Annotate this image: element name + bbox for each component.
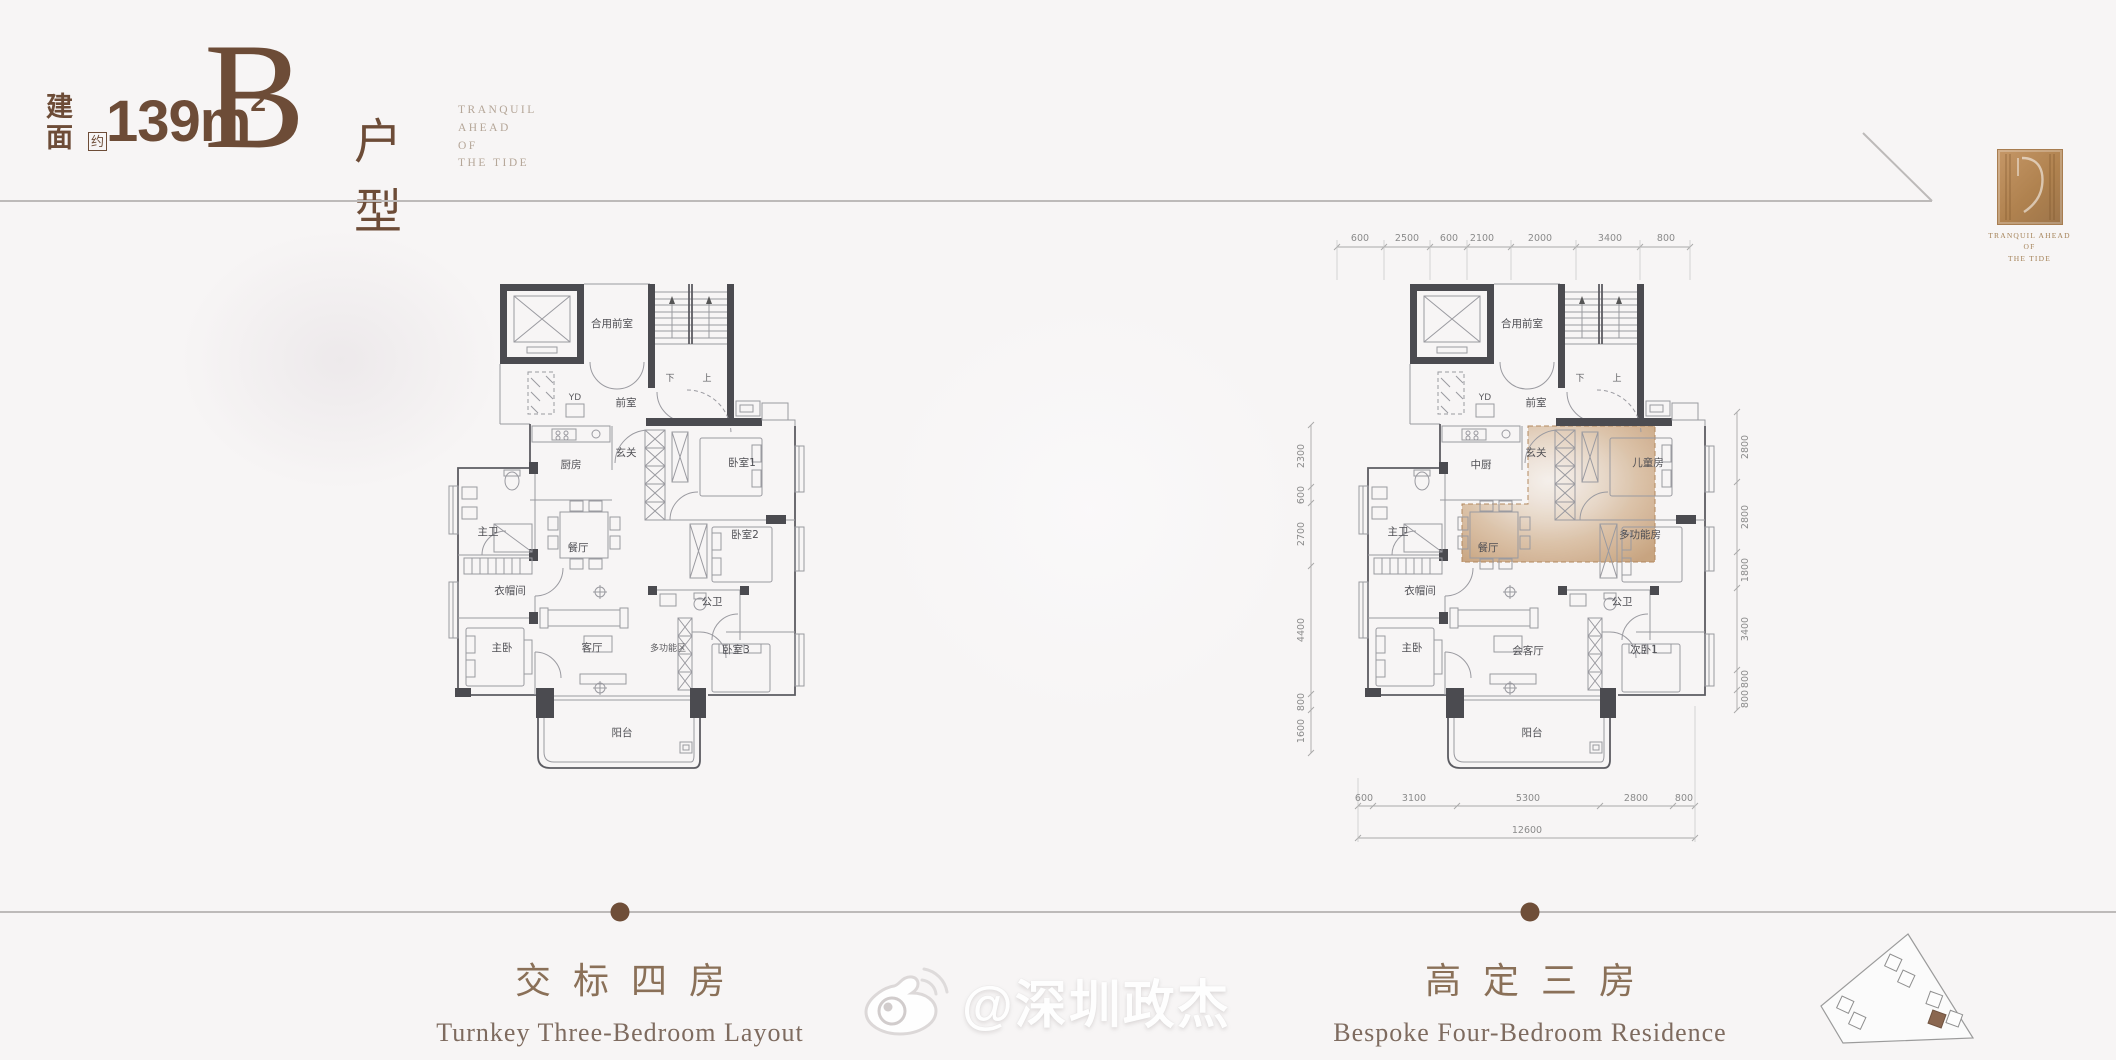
room-label: YD: [1478, 393, 1491, 403]
caption-right-zh: 高定三房: [1290, 952, 1770, 1004]
dimension-label: 2800: [1740, 505, 1751, 529]
room-label: 公卫: [702, 596, 723, 608]
room-label: 餐厅: [568, 541, 589, 554]
dimension-label: 800: [1740, 690, 1751, 708]
dimension-label: 2500: [1395, 233, 1419, 244]
dimension-label: 1600: [1296, 719, 1307, 743]
dimension-label: 3400: [1598, 233, 1622, 244]
room-label: 多功能区: [650, 642, 686, 654]
room-label: 会客厅: [1512, 644, 1544, 657]
dimension-label: 3400: [1740, 617, 1751, 641]
room-label: 阳台: [612, 726, 633, 739]
watermark: @深圳政杰: [860, 962, 1231, 1038]
dimension-label: 600: [1296, 486, 1307, 504]
dimension-label: 2800: [1624, 793, 1648, 804]
room-label: 主卧: [492, 641, 513, 654]
dimension-label: 600: [1351, 233, 1369, 244]
plans-canvas: 合用前室前室下上YD厨房玄关卧室1餐厅卧室2主卫衣帽间公卫主卧客厅多功能区卧室3…: [0, 0, 2116, 1060]
dimension-label: 2700: [1296, 522, 1307, 546]
room-label: 合用前室: [1501, 317, 1543, 330]
dimension-label: 12600: [1512, 825, 1542, 836]
room-label: 儿童房: [1632, 456, 1664, 469]
room-label: 合用前室: [591, 317, 633, 330]
room-label: 上: [1612, 373, 1621, 384]
room-label: 厨房: [561, 458, 582, 471]
room-label: 主卫: [1388, 526, 1409, 538]
top-divider-line: [0, 133, 1932, 201]
dimension-label: 1800: [1740, 558, 1751, 582]
room-label: 主卫: [478, 526, 499, 538]
floor-plan-left: 合用前室前室下上YD厨房玄关卧室1餐厅卧室2主卫衣帽间公卫主卧客厅多功能区卧室3…: [449, 284, 804, 768]
room-label: 多功能房: [1619, 528, 1661, 541]
dimension-label: 600: [1440, 233, 1458, 244]
dimension-label: 5300: [1516, 793, 1540, 804]
caption-right: 高定三房 Bespoke Four-Bedroom Residence: [1290, 952, 1770, 1048]
dimension-label: 800: [1675, 793, 1693, 804]
room-label: 玄关: [616, 446, 637, 459]
left-plan-dot: [611, 903, 630, 922]
dimension-label: 2100: [1470, 233, 1494, 244]
room-label: 餐厅: [1478, 541, 1499, 554]
bottom-divider-line: [0, 903, 2116, 922]
poster-page: 建 面 约 139m2 B 户型 TRANQUIL AHEAD OF THE T…: [0, 0, 2116, 1060]
dimension-label: 4400: [1296, 618, 1307, 642]
dimension-label: 600: [1355, 793, 1373, 804]
room-label: 玄关: [1526, 446, 1548, 459]
room-label: 卧室3: [722, 643, 750, 656]
right-plan-dot: [1521, 903, 1540, 922]
room-label: 卧室1: [728, 456, 756, 469]
room-label: 衣帽间: [494, 584, 526, 597]
dimension-label: 2800: [1740, 435, 1751, 459]
caption-left-en: Turnkey Three-Bedroom Layout: [380, 1018, 860, 1048]
watermark-text: @深圳政杰: [962, 963, 1231, 1038]
room-label: 阳台: [1522, 726, 1543, 739]
room-label: 主卧: [1402, 641, 1424, 654]
dimension-label: 2000: [1528, 233, 1552, 244]
room-label: 前室: [1526, 396, 1547, 409]
dimension-label: 800: [1740, 670, 1751, 688]
dimension-label: 3100: [1402, 793, 1426, 804]
floor-plan-right: 合用前室前室下上YD中厨玄关儿童房餐厅多功能房主卫衣帽间公卫主卧会客厅次卧1阳台…: [1296, 233, 1751, 842]
room-label: YD: [568, 393, 581, 403]
room-label: 客厅: [582, 641, 603, 654]
weibo-icon: [860, 962, 952, 1038]
dimension-label: 800: [1657, 233, 1675, 244]
room-label: 衣帽间: [1404, 584, 1436, 597]
room-label: 公卫: [1612, 596, 1633, 608]
room-label: 上: [702, 373, 711, 384]
room-label: 下: [665, 374, 674, 384]
dimension-label: 800: [1296, 693, 1307, 711]
caption-left: 交标四房 Turnkey Three-Bedroom Layout: [380, 952, 860, 1048]
caption-left-zh: 交标四房: [380, 952, 860, 1004]
caption-right-en: Bespoke Four-Bedroom Residence: [1290, 1018, 1770, 1048]
room-label: 下: [1575, 374, 1584, 384]
room-label: 次卧1: [1630, 643, 1658, 656]
room-label: 卧室2: [731, 528, 759, 541]
dimension-label: 2300: [1296, 444, 1307, 468]
room-label: 中厨: [1471, 458, 1493, 471]
site-plan-map: [1821, 934, 1973, 1043]
room-label: 前室: [616, 396, 637, 409]
